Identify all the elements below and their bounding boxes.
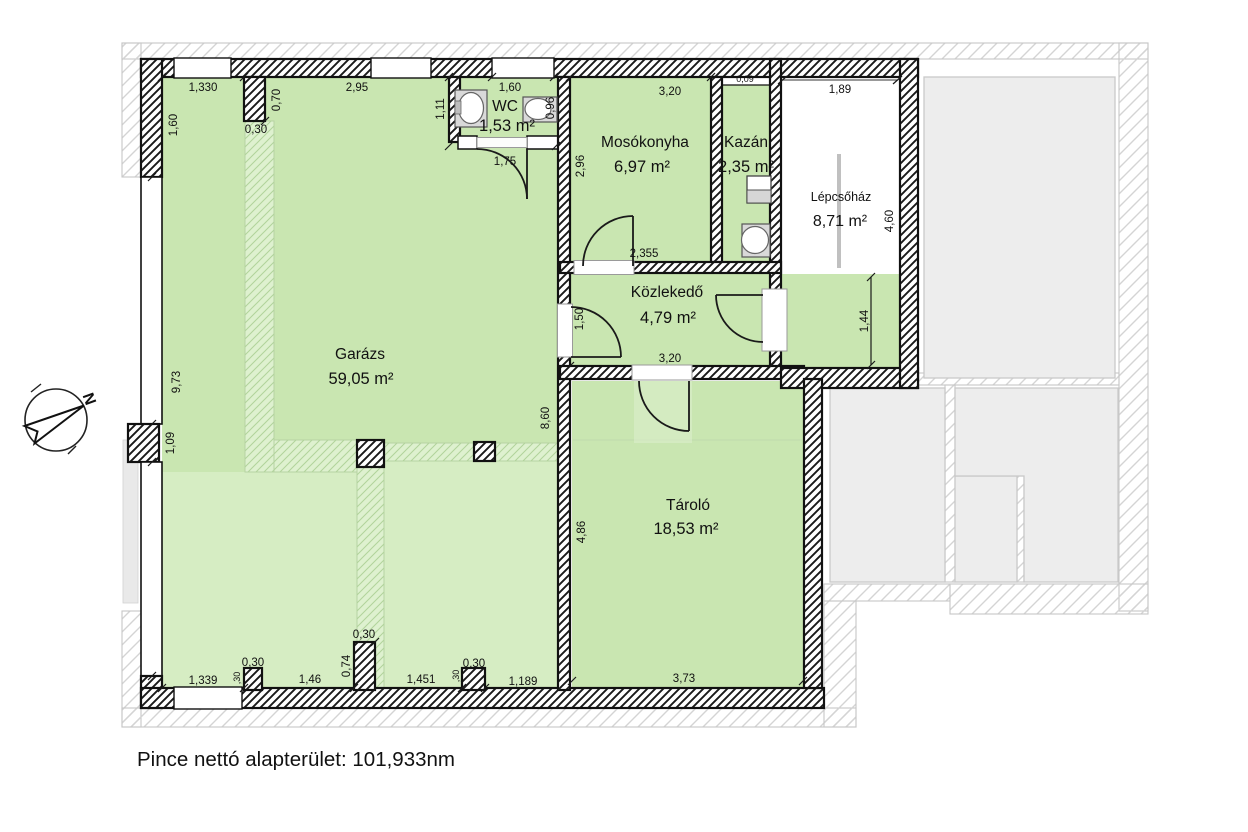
svg-text:2,35 m²: 2,35 m² [718,158,774,176]
svg-text:3,20: 3,20 [659,353,681,365]
svg-text:4,60: 4,60 [884,210,896,232]
svg-text:59,05 m²: 59,05 m² [328,370,394,388]
svg-text:1,189: 1,189 [509,676,538,688]
svg-text:Mosókonyha: Mosókonyha [601,134,689,151]
svg-text:WC: WC [492,98,518,115]
svg-text:2,96: 2,96 [575,155,587,177]
svg-text:Tároló: Tároló [666,497,710,514]
svg-text:Lépcsőház: Lépcsőház [811,190,871,204]
svg-text:,30: ,30 [232,672,242,685]
svg-text:0,09: 0,09 [736,74,754,84]
svg-text:2,355: 2,355 [630,248,659,260]
svg-text:3,20: 3,20 [659,86,681,98]
svg-text:4,86: 4,86 [576,521,588,543]
svg-text:1,339: 1,339 [189,675,218,687]
svg-text:3,73: 3,73 [673,673,695,685]
svg-text:6,97 m²: 6,97 m² [614,158,670,176]
svg-text:1,44: 1,44 [859,309,871,332]
svg-text:1,46: 1,46 [299,674,321,686]
svg-text:0,70: 0,70 [271,89,283,111]
svg-text:1,89: 1,89 [829,84,851,96]
svg-text:18,53 m²: 18,53 m² [653,520,719,538]
svg-text:1,53 m²: 1,53 m² [479,117,535,135]
svg-text:Kazán: Kazán [724,134,768,151]
svg-text:1,75: 1,75 [494,156,516,168]
svg-text:8,60: 8,60 [540,407,552,429]
svg-text:1,330: 1,330 [189,82,218,94]
svg-text:1,60: 1,60 [499,82,521,94]
svg-text:1,60: 1,60 [168,114,180,136]
svg-text:Pince nettó alapterület: 101,9: Pince nettó alapterület: 101,933nm [137,748,455,771]
svg-text:0,30: 0,30 [242,657,264,669]
svg-text:9,73: 9,73 [171,371,183,393]
svg-text:1,451: 1,451 [407,674,436,686]
svg-text:1,09: 1,09 [165,432,177,454]
svg-text:0,96: 0,96 [545,97,557,119]
svg-text:1,11: 1,11 [435,98,447,120]
svg-text:Garázs: Garázs [335,346,385,363]
svg-text:2,95: 2,95 [346,82,368,94]
svg-text:Közlekedő: Közlekedő [631,284,703,301]
svg-text:0,30: 0,30 [245,124,267,136]
svg-text:,30: ,30 [451,670,461,683]
svg-text:8,71 m²: 8,71 m² [813,213,868,230]
svg-text:0,30: 0,30 [463,658,485,670]
svg-text:0,74: 0,74 [341,654,353,677]
svg-text:4,79 m²: 4,79 m² [640,309,696,327]
svg-text:1,50: 1,50 [574,308,586,330]
svg-text:0,30: 0,30 [353,629,375,641]
